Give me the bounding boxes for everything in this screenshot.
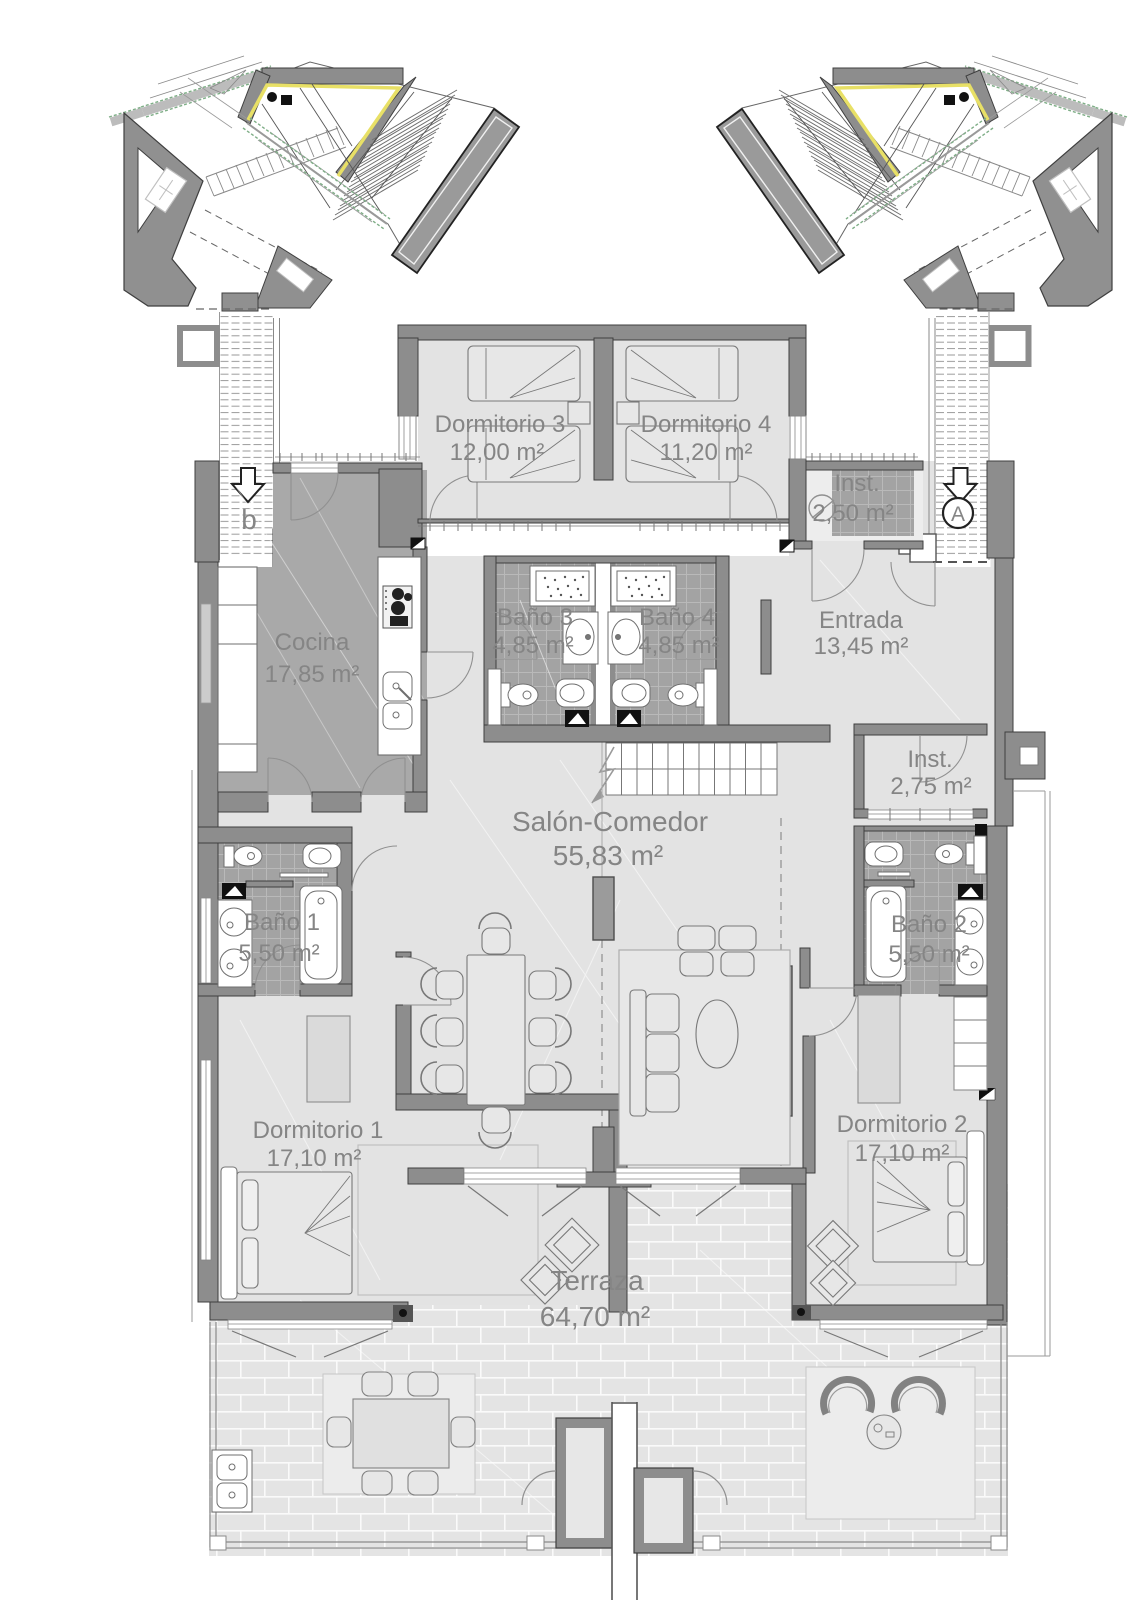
svg-text:12,00 m²: 12,00 m² [450, 439, 545, 466]
svg-text:Baño 3: Baño 3 [497, 604, 573, 631]
svg-text:17,10 m²: 17,10 m² [855, 1140, 950, 1167]
svg-text:55,83 m²: 55,83 m² [553, 840, 664, 871]
svg-text:5,50 m²: 5,50 m² [888, 941, 969, 968]
svg-text:13,45 m²: 13,45 m² [814, 633, 909, 660]
svg-text:11,20 m²: 11,20 m² [660, 439, 753, 466]
svg-text:Inst.: Inst. [834, 470, 879, 497]
svg-text:5,50 m²: 5,50 m² [238, 940, 319, 967]
svg-text:2,50 m²: 2,50 m² [812, 500, 893, 527]
svg-text:Terraza: Terraza [550, 1265, 644, 1296]
svg-text:Baño 1: Baño 1 [244, 909, 320, 936]
svg-text:Dormitorio 1: Dormitorio 1 [253, 1117, 384, 1144]
svg-text:Baño 2: Baño 2 [891, 911, 967, 938]
svg-text:Entrada: Entrada [819, 607, 904, 634]
svg-text:Inst.: Inst. [907, 746, 952, 773]
svg-text:64,70 m²: 64,70 m² [540, 1301, 651, 1332]
svg-text:Cocina: Cocina [275, 629, 350, 656]
svg-text:Dormitorio 2: Dormitorio 2 [837, 1111, 968, 1138]
svg-text:Dormitorio 3: Dormitorio 3 [435, 411, 566, 438]
svg-text:17,10 m²: 17,10 m² [267, 1145, 362, 1172]
svg-text:Dormitorio 4: Dormitorio 4 [641, 411, 772, 438]
svg-text:A: A [951, 503, 965, 526]
svg-text:2,75 m²: 2,75 m² [890, 773, 971, 800]
svg-text:Baño 4: Baño 4 [639, 604, 715, 631]
svg-text:17,85 m²: 17,85 m² [265, 661, 360, 688]
svg-text:4,85 m²: 4,85 m² [638, 632, 719, 659]
svg-text:Salón-Comedor: Salón-Comedor [512, 806, 708, 837]
svg-text:4,85 m²: 4,85 m² [492, 632, 573, 659]
svg-text:b: b [241, 504, 257, 535]
